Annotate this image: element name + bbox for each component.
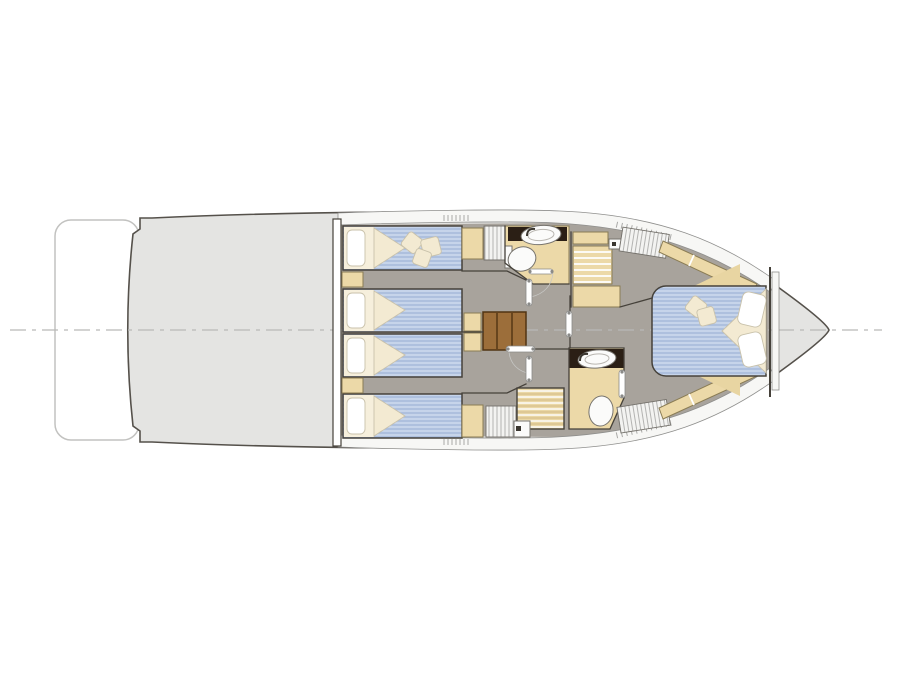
bow-walkway-strip [772, 272, 779, 390]
double-bed [652, 286, 768, 376]
aft-bulkhead [333, 219, 341, 446]
single-bed-3 [343, 334, 462, 377]
door-cabin-starboard [526, 356, 532, 382]
wardrobe-starboard [486, 406, 516, 437]
single-bed-4 [343, 394, 462, 438]
window-ticks-starboard-aft [444, 439, 468, 445]
stair-top-step [573, 232, 608, 244]
door-cabin-port [526, 279, 532, 306]
yacht-floorplan-canvas: Motor yacht lower deck layout plan [0, 0, 900, 675]
single-bed-1 [343, 226, 462, 270]
window-ticks-port-aft [444, 215, 468, 221]
side-cabinet-port [462, 228, 483, 259]
nightstand-port [342, 272, 363, 287]
stair-step-lower [464, 333, 481, 351]
single-bed-2 [343, 289, 462, 332]
door-lobby-starboard [506, 346, 535, 352]
door-bathroom-port [528, 269, 553, 274]
door-master-cabin [566, 311, 572, 337]
side-cabinet-starboard [462, 405, 483, 437]
stair-treads-wood [483, 312, 526, 350]
stair-landing [573, 286, 620, 307]
stair-step-upper [464, 313, 481, 331]
small-fixture-icon-bottom [514, 421, 530, 437]
floorplan-svg [0, 0, 900, 675]
nightstand-starboard [342, 378, 363, 393]
door-bathroom-starboard [619, 370, 625, 398]
